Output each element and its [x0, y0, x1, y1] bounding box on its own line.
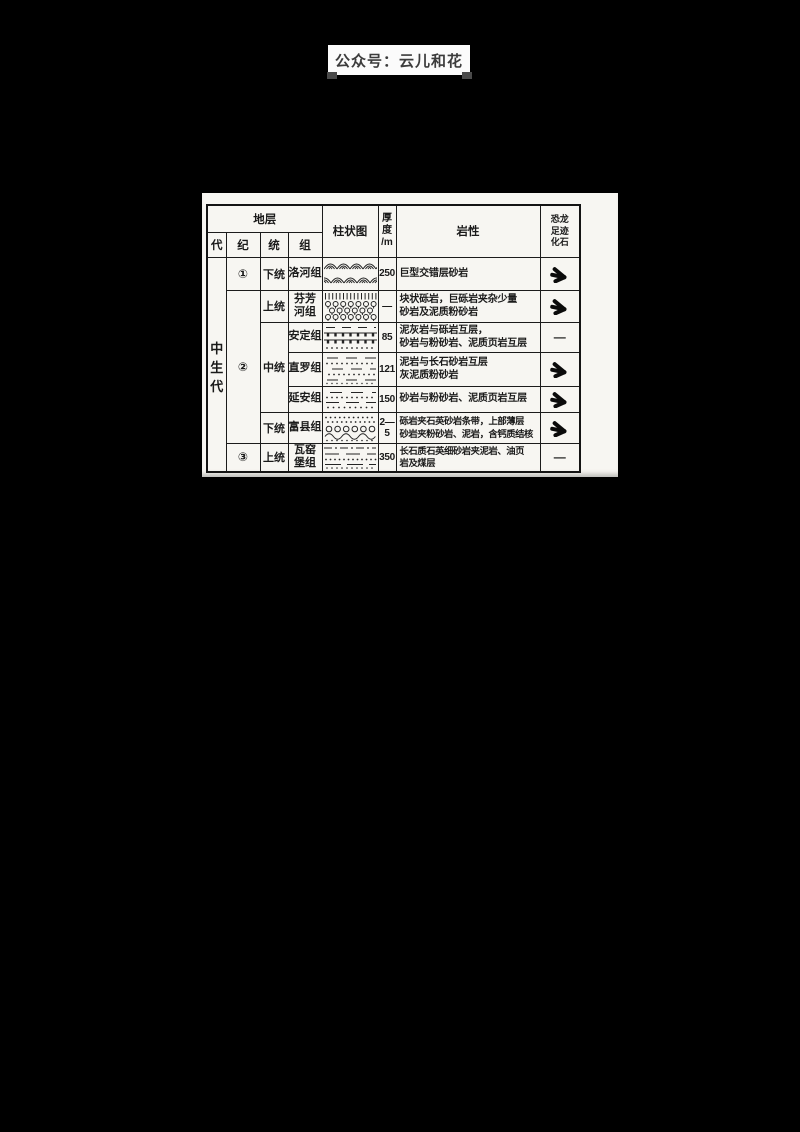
table-row: 中 生 代 ① 下统 洛河组 250 巨型交错层砂岩: [207, 257, 580, 290]
column-diagram-cell: [322, 290, 378, 322]
fossil-cell: [540, 352, 580, 386]
lithology-pattern-cross-bedded-sandstone: [324, 259, 377, 289]
column-diagram-cell: [322, 257, 378, 290]
series-cell: 下统: [260, 412, 288, 443]
period-cell: ③: [226, 443, 260, 472]
period-cell: ①: [226, 257, 260, 290]
period-cell: ②: [226, 290, 260, 443]
series-cell: 上统: [260, 290, 288, 322]
lithology-cell: 巨型交错层砂岩: [396, 257, 540, 290]
series-cell: 中统: [260, 322, 288, 412]
dinosaur-footprint-icon: [549, 265, 570, 283]
header-series: 统: [260, 232, 288, 257]
formation-cell: 瓦窑 堡组: [288, 443, 322, 472]
corner-mark-right: [462, 72, 472, 79]
header-formation: 组: [288, 232, 322, 257]
formation-cell: 芬芳 河组: [288, 290, 322, 322]
dinosaur-footprint-icon: [549, 297, 570, 315]
thickness-cell: 150: [378, 386, 396, 412]
fossil-cell: [540, 386, 580, 412]
formation-cell: 富县组: [288, 412, 322, 443]
lithology-cell: 块状砾岩，巨砾岩夹杂少量 砂岩及泥质粉砂岩: [396, 290, 540, 322]
lithology-cell: 泥灰岩与砾岩互层， 砂岩与粉砂岩、泥质页岩互层: [396, 322, 540, 352]
header-lithology: 岩性: [396, 205, 540, 257]
column-diagram-cell: [322, 322, 378, 352]
header-column-diagram: 柱状图: [322, 205, 378, 257]
lithology-pattern-mudstone-sandstone: [324, 354, 377, 385]
thickness-cell: 121: [378, 352, 396, 386]
lithology-pattern-gravel-wave: [324, 414, 377, 442]
column-diagram-cell: [322, 386, 378, 412]
scanned-page: { "page": { "background": "#000000", "pa…: [0, 0, 800, 1132]
header-dinosaur-footprint-fossil: 恐龙 足迹 化石: [540, 205, 580, 257]
thickness-cell: 350: [378, 443, 396, 472]
header-era: 代: [207, 232, 226, 257]
thickness-cell: 2—5: [378, 412, 396, 443]
fossil-cell: [540, 290, 580, 322]
lithology-pattern-coal-series: [324, 444, 377, 470]
thickness-cell: —: [378, 290, 396, 322]
dinosaur-footprint-icon: [549, 390, 570, 408]
lithology-cell: 砂岩与粉砂岩、泥质页岩互层: [396, 386, 540, 412]
formation-cell: 洛河组: [288, 257, 322, 290]
header-strata: 地层: [207, 205, 322, 232]
era-cell: 中 生 代: [207, 257, 226, 472]
formation-cell: 延安组: [288, 386, 322, 412]
stratigraphic-table: 地层 柱状图 厚 度 /m 岩性 恐龙 足迹 化石 代 纪 统 组 中: [206, 204, 581, 473]
formation-cell: 安定组: [288, 322, 322, 352]
corner-mark-left: [327, 72, 337, 79]
watermark-title-box: 公众号：云儿和花: [328, 45, 470, 75]
fossil-cell: [540, 412, 580, 443]
dinosaur-footprint-icon: [549, 419, 570, 437]
lithology-cell: 泥岩与长石砂岩互层 灰泥质粉砂岩: [396, 352, 540, 386]
fossil-cell: —: [540, 443, 580, 472]
formation-cell: 直罗组: [288, 352, 322, 386]
dinosaur-footprint-icon: [549, 360, 570, 378]
lithology-pattern-sandstone-siltstone: [324, 388, 377, 411]
fossil-cell: —: [540, 322, 580, 352]
table-row: 下统 富县组 2—5 砾岩夹石英砂岩条带，上部薄层 砂岩夹粉砂岩、泥岩，含钙质结…: [207, 412, 580, 443]
table-row: 中统 安定组 85 泥灰岩与砾岩互层， 砂岩与粉砂岩、泥质页岩互层 —: [207, 322, 580, 352]
watermark-text: 公众号：云儿和花: [335, 50, 463, 71]
scanned-figure-paper: 地层 柱状图 厚 度 /m 岩性 恐龙 足迹 化石 代 纪 统 组 中: [202, 193, 618, 477]
thickness-cell: 250: [378, 257, 396, 290]
column-diagram-cell: [322, 443, 378, 472]
lithology-pattern-conglomerate: [324, 292, 377, 321]
lithology-pattern-marl-breccia: [324, 324, 377, 351]
series-cell: 下统: [260, 257, 288, 290]
series-cell: 上统: [260, 443, 288, 472]
fossil-cell: [540, 257, 580, 290]
column-diagram-cell: [322, 412, 378, 443]
thickness-cell: 85: [378, 322, 396, 352]
table-row: ③ 上统 瓦窑 堡组 350 长石质石英细砂岩夹泥岩、油页 岩及煤层 —: [207, 443, 580, 472]
lithology-cell: 砾岩夹石英砂岩条带，上部薄层 砂岩夹粉砂岩、泥岩，含钙质结核: [396, 412, 540, 443]
table-row: ② 上统 芬芳 河组 — 块状砾岩，巨砾岩夹杂少量 砂岩及泥质粉砂岩: [207, 290, 580, 322]
header-thickness: 厚 度 /m: [378, 205, 396, 257]
column-diagram-cell: [322, 352, 378, 386]
header-period: 纪: [226, 232, 260, 257]
lithology-cell: 长石质石英细砂岩夹泥岩、油页 岩及煤层: [396, 443, 540, 472]
